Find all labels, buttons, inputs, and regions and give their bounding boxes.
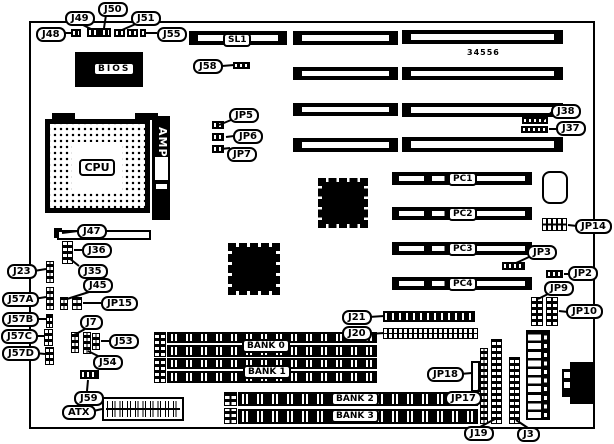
din-pin-2	[564, 382, 570, 388]
callout-j37: J37	[556, 121, 586, 136]
callout-atx: ATX	[62, 405, 96, 420]
callout-j59: J59	[74, 391, 104, 406]
callout-j20: J20	[342, 326, 372, 341]
callout-j57d: J57D	[2, 346, 40, 361]
pci-slot-pc1-label: PC1	[448, 172, 477, 186]
callout-j47: J47	[77, 224, 107, 239]
callout-j7: J7	[80, 315, 103, 330]
callout-jp5: JP5	[229, 108, 259, 123]
callout-jp10: JP10	[566, 304, 603, 319]
callout-j23: J23	[7, 264, 37, 279]
pci-slot-pc3-label: PC3	[448, 242, 477, 256]
callout-jp14: JP14	[575, 219, 612, 234]
callout-j45: J45	[83, 278, 113, 293]
callout-j57b: J57B	[2, 312, 39, 327]
pci-slot-pc2-label: PC2	[448, 207, 477, 221]
callout-j49: J49	[65, 11, 95, 26]
bank3-label: BANK 3	[331, 409, 379, 423]
bank1-label: BANK 1	[243, 365, 291, 379]
callout-j21: J21	[342, 310, 372, 325]
callout-jp18: JP18	[427, 367, 464, 382]
callout-jp2: JP2	[568, 266, 598, 281]
callout-j57a: J57A	[2, 292, 39, 307]
bank0-label: BANK 0	[242, 339, 290, 353]
motherboard-diagram: SL1 34556 BIOS J58 JP5 JP6 JP7 CPU AMP J…	[0, 0, 614, 444]
pci-slot-pc4-label: PC4	[448, 277, 477, 291]
slot-sl1-label: SL1	[223, 33, 251, 47]
callout-jp15: JP15	[101, 296, 138, 311]
callout-j51: J51	[131, 11, 161, 26]
callout-jp7: JP7	[227, 147, 257, 162]
callout-j36: J36	[82, 243, 112, 258]
din-pin-1	[564, 372, 570, 378]
callout-jp17: JP17	[445, 391, 482, 406]
callout-jp3: JP3	[527, 245, 557, 260]
bios-label: BIOS	[93, 62, 135, 76]
callout-j58: J58	[193, 59, 223, 74]
callout-j35: J35	[78, 264, 108, 279]
callout-j3: J3	[517, 427, 540, 442]
callout-j38: J38	[551, 104, 581, 119]
callout-j53: J53	[109, 334, 139, 349]
callout-jp6: JP6	[233, 129, 263, 144]
callout-j48: J48	[36, 27, 66, 42]
callout-j50: J50	[98, 2, 128, 17]
callout-j55: J55	[157, 27, 187, 42]
callout-jp9: JP9	[544, 281, 574, 296]
callout-j57c: J57C	[1, 329, 38, 344]
callout-j54: J54	[93, 355, 123, 370]
callout-j19: J19	[464, 426, 494, 441]
bank2-label: BANK 2	[331, 392, 379, 406]
